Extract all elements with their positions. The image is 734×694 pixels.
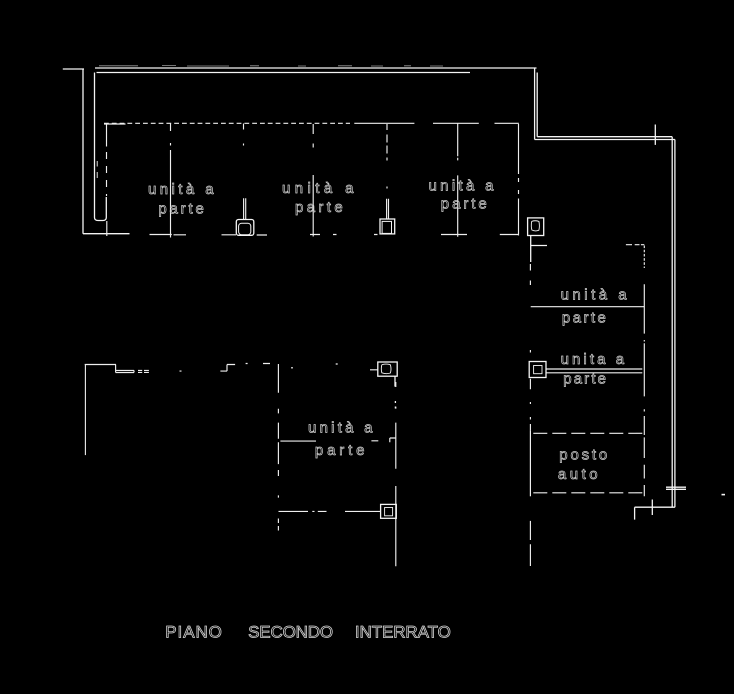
svg-text:unità a: unità a: [561, 287, 628, 304]
svg-text:unità a: unità a: [148, 181, 214, 198]
svg-text:unità a: unità a: [282, 180, 354, 197]
svg-text:parte: parte: [562, 310, 606, 327]
svg-text:parte: parte: [295, 199, 343, 216]
svg-text:parte: parte: [315, 442, 365, 459]
svg-text:parte: parte: [158, 201, 203, 218]
svg-text:auto: auto: [558, 466, 598, 483]
svg-text:INTERRATO: INTERRATO: [355, 623, 451, 642]
svg-text:posto: posto: [559, 447, 607, 464]
svg-text:parte: parte: [563, 371, 606, 388]
svg-text:SECONDO: SECONDO: [248, 623, 333, 642]
svg-text:PIANO: PIANO: [165, 623, 222, 642]
svg-text:parte: parte: [441, 196, 487, 213]
svg-text:unita a: unita a: [561, 351, 625, 368]
svg-text:unità a: unità a: [308, 420, 373, 437]
svg-text:unità a: unità a: [429, 178, 495, 195]
